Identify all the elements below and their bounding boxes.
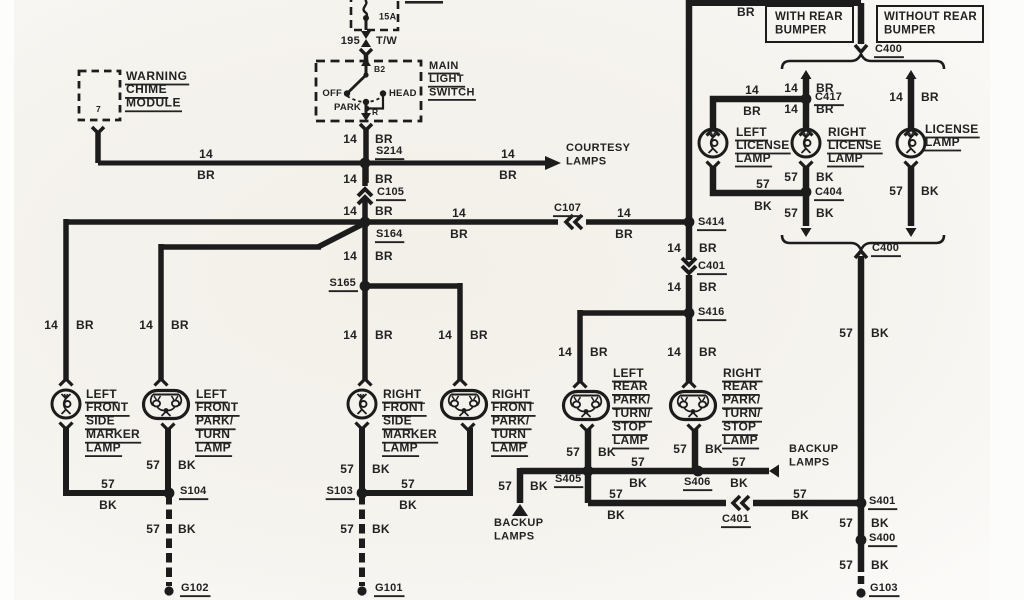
- svg-text:S406: S406: [684, 476, 711, 488]
- svg-text:S414: S414: [698, 216, 725, 228]
- svg-text:14: 14: [617, 206, 631, 220]
- svg-text:C401: C401: [698, 260, 725, 272]
- svg-text:BK: BK: [816, 206, 834, 220]
- svg-text:G103: G103: [870, 582, 898, 594]
- svg-text:WITHOUT REAR: WITHOUT REAR: [884, 11, 977, 23]
- svg-text:BR: BR: [171, 318, 189, 332]
- svg-text:57: 57: [498, 479, 512, 493]
- svg-text:57: 57: [146, 458, 160, 472]
- svg-text:BK: BK: [607, 508, 625, 522]
- svg-text:LAMP: LAMP: [723, 433, 758, 447]
- svg-text:14: 14: [784, 81, 798, 95]
- svg-text:C404: C404: [815, 186, 843, 198]
- svg-text:57: 57: [146, 522, 160, 536]
- svg-text:14: 14: [139, 318, 153, 332]
- svg-text:BK: BK: [871, 558, 889, 572]
- svg-text:57: 57: [673, 442, 687, 456]
- svg-text:BR: BR: [375, 132, 393, 146]
- svg-text:BR: BR: [375, 249, 393, 263]
- svg-text:MODULE: MODULE: [126, 96, 181, 110]
- svg-text:14: 14: [343, 204, 357, 218]
- svg-text:TURN: TURN: [196, 427, 230, 441]
- svg-text:S400: S400: [869, 532, 896, 544]
- svg-text:LAMPS: LAMPS: [566, 156, 607, 168]
- svg-text:57: 57: [631, 455, 645, 469]
- svg-text:BK: BK: [705, 442, 723, 456]
- svg-text:SWITCH: SWITCH: [429, 86, 475, 98]
- svg-text:BR: BR: [921, 90, 939, 104]
- svg-text:G102: G102: [181, 582, 209, 594]
- svg-text:S405: S405: [555, 473, 582, 485]
- svg-text:57: 57: [340, 522, 354, 536]
- svg-text:14: 14: [745, 83, 759, 97]
- svg-text:FRONT: FRONT: [383, 400, 426, 414]
- svg-text:7: 7: [96, 104, 101, 114]
- svg-text:LAMP: LAMP: [492, 440, 527, 454]
- svg-text:57: 57: [101, 477, 115, 491]
- svg-text:BK: BK: [791, 508, 809, 522]
- svg-text:WITH REAR: WITH REAR: [775, 11, 843, 23]
- svg-text:14: 14: [452, 206, 466, 220]
- svg-text:STOP: STOP: [613, 419, 646, 433]
- svg-text:TURN/: TURN/: [723, 406, 761, 420]
- svg-text:S164: S164: [376, 228, 403, 240]
- svg-text:BK: BK: [871, 326, 889, 340]
- svg-text:57: 57: [756, 177, 770, 191]
- svg-text:S416: S416: [698, 306, 725, 318]
- svg-text:LAMPS: LAMPS: [789, 457, 830, 469]
- svg-text:BR: BR: [699, 345, 717, 359]
- svg-text:57: 57: [732, 455, 746, 469]
- svg-text:PARK/: PARK/: [723, 393, 761, 407]
- svg-text:15A: 15A: [379, 12, 397, 22]
- svg-text:MARKER: MARKER: [383, 427, 437, 441]
- svg-text:R: R: [372, 107, 378, 117]
- svg-text:BR: BR: [743, 104, 761, 118]
- svg-text:BR: BR: [375, 204, 393, 218]
- svg-text:S104: S104: [180, 485, 207, 497]
- svg-text:BK: BK: [598, 445, 616, 459]
- svg-text:BR: BR: [375, 328, 393, 342]
- svg-text:STOP: STOP: [723, 419, 756, 433]
- svg-text:BK: BK: [399, 498, 417, 512]
- svg-text:57: 57: [839, 326, 853, 340]
- svg-text:57: 57: [784, 170, 798, 184]
- svg-text:BK: BK: [530, 479, 548, 493]
- svg-text:BR: BR: [816, 81, 834, 95]
- svg-text:BR: BR: [375, 172, 393, 186]
- svg-text:LAMP: LAMP: [925, 135, 960, 149]
- svg-text:LEFT: LEFT: [736, 125, 767, 139]
- svg-text:T/W: T/W: [376, 35, 397, 47]
- svg-text:14: 14: [501, 147, 515, 161]
- svg-text:SIDE: SIDE: [383, 414, 412, 428]
- svg-text:14: 14: [343, 132, 357, 146]
- svg-text:BACKUP: BACKUP: [789, 443, 838, 455]
- svg-text:LEFT: LEFT: [86, 387, 117, 401]
- svg-text:B2: B2: [374, 64, 385, 74]
- svg-text:LAMP: LAMP: [736, 151, 771, 165]
- svg-text:57: 57: [793, 487, 807, 501]
- svg-text:14: 14: [667, 241, 681, 255]
- svg-text:BACKUP: BACKUP: [494, 517, 543, 529]
- svg-text:TURN: TURN: [492, 427, 526, 441]
- svg-text:MAIN: MAIN: [429, 60, 459, 72]
- svg-text:C401: C401: [722, 513, 749, 525]
- svg-text:14: 14: [784, 102, 798, 116]
- svg-text:BR: BR: [699, 241, 717, 255]
- svg-text:LIGHT: LIGHT: [429, 73, 464, 85]
- svg-text:14: 14: [667, 280, 681, 294]
- svg-text:57: 57: [340, 462, 354, 476]
- svg-text:LAMP: LAMP: [383, 440, 418, 454]
- svg-text:PARK: PARK: [334, 102, 361, 113]
- svg-text:195: 195: [341, 35, 360, 47]
- svg-text:57: 57: [566, 445, 580, 459]
- svg-text:WARNING: WARNING: [126, 69, 188, 83]
- svg-text:BR: BR: [470, 328, 488, 342]
- svg-text:RIGHT: RIGHT: [828, 125, 867, 139]
- svg-text:BR: BR: [197, 168, 215, 182]
- svg-text:LICENSE: LICENSE: [736, 138, 789, 152]
- svg-text:BUMPER: BUMPER: [775, 24, 827, 36]
- svg-text:BK: BK: [754, 199, 772, 213]
- svg-text:57: 57: [889, 184, 903, 198]
- svg-text:14: 14: [343, 328, 357, 342]
- svg-text:OFF: OFF: [322, 88, 342, 99]
- svg-text:LICENSE: LICENSE: [828, 138, 881, 152]
- svg-text:REAR: REAR: [613, 379, 648, 393]
- svg-text:C105: C105: [377, 186, 404, 198]
- svg-text:FRONT: FRONT: [86, 400, 129, 414]
- svg-text:14: 14: [558, 345, 572, 359]
- svg-text:14: 14: [343, 249, 357, 263]
- svg-text:BK: BK: [730, 476, 748, 490]
- svg-text:LEFT: LEFT: [196, 387, 227, 401]
- svg-text:RIGHT: RIGHT: [723, 366, 762, 380]
- svg-text:BUMPER: BUMPER: [884, 24, 936, 36]
- svg-text:S214: S214: [376, 145, 403, 157]
- svg-text:REAR: REAR: [723, 379, 758, 393]
- svg-text:LAMP: LAMP: [196, 440, 231, 454]
- svg-text:BR: BR: [737, 5, 755, 19]
- svg-text:14: 14: [199, 147, 213, 161]
- svg-text:57: 57: [784, 206, 798, 220]
- svg-text:57: 57: [609, 487, 623, 501]
- svg-text:14: 14: [343, 172, 357, 186]
- svg-text:BR: BR: [615, 227, 633, 241]
- svg-text:57: 57: [839, 516, 853, 530]
- svg-text:BR: BR: [699, 280, 717, 294]
- svg-text:LEFT: LEFT: [613, 366, 644, 380]
- svg-text:FRONT: FRONT: [196, 400, 239, 414]
- svg-text:BK: BK: [99, 498, 117, 512]
- svg-text:S165: S165: [330, 277, 357, 289]
- svg-text:C400: C400: [875, 43, 902, 55]
- svg-text:LAMP: LAMP: [828, 151, 863, 165]
- svg-text:MARKER: MARKER: [86, 427, 140, 441]
- svg-text:BR: BR: [76, 318, 94, 332]
- svg-text:BR: BR: [816, 102, 834, 116]
- svg-text:LICENSE: LICENSE: [925, 122, 978, 136]
- svg-text:FRONT: FRONT: [492, 400, 535, 414]
- svg-text:RIGHT: RIGHT: [492, 387, 531, 401]
- svg-text:HEAD: HEAD: [389, 88, 417, 99]
- svg-text:14: 14: [889, 90, 903, 104]
- svg-text:TURN/: TURN/: [613, 406, 651, 420]
- svg-text:LAMP: LAMP: [86, 440, 121, 454]
- svg-text:C400: C400: [872, 242, 899, 254]
- svg-text:LAMPS: LAMPS: [494, 531, 535, 543]
- svg-text:14: 14: [667, 345, 681, 359]
- svg-text:BK: BK: [921, 184, 939, 198]
- svg-text:PARK/: PARK/: [196, 414, 234, 428]
- svg-text:LAMP: LAMP: [613, 433, 648, 447]
- svg-text:BK: BK: [816, 170, 834, 184]
- svg-text:BK: BK: [372, 462, 390, 476]
- svg-text:BK: BK: [372, 522, 390, 536]
- svg-text:14: 14: [438, 328, 452, 342]
- svg-text:57: 57: [839, 558, 853, 572]
- svg-text:CHIME: CHIME: [126, 82, 167, 96]
- svg-text:C107: C107: [554, 202, 581, 214]
- svg-text:BK: BK: [178, 522, 196, 536]
- svg-text:SIDE: SIDE: [86, 414, 115, 428]
- svg-text:S103: S103: [327, 485, 354, 497]
- svg-text:S401: S401: [869, 495, 896, 507]
- svg-text:COURTESY: COURTESY: [566, 142, 631, 154]
- svg-text:BR: BR: [590, 345, 608, 359]
- svg-text:G101: G101: [375, 582, 403, 594]
- svg-text:BK: BK: [871, 516, 889, 530]
- svg-text:57: 57: [401, 477, 415, 491]
- svg-text:BR: BR: [450, 227, 468, 241]
- svg-text:PARK/: PARK/: [492, 414, 530, 428]
- svg-text:14: 14: [44, 318, 58, 332]
- svg-text:PARK/: PARK/: [613, 393, 651, 407]
- svg-text:BR: BR: [499, 168, 517, 182]
- svg-text:RIGHT: RIGHT: [383, 387, 422, 401]
- svg-text:BK: BK: [629, 476, 647, 490]
- svg-text:BK: BK: [178, 458, 196, 472]
